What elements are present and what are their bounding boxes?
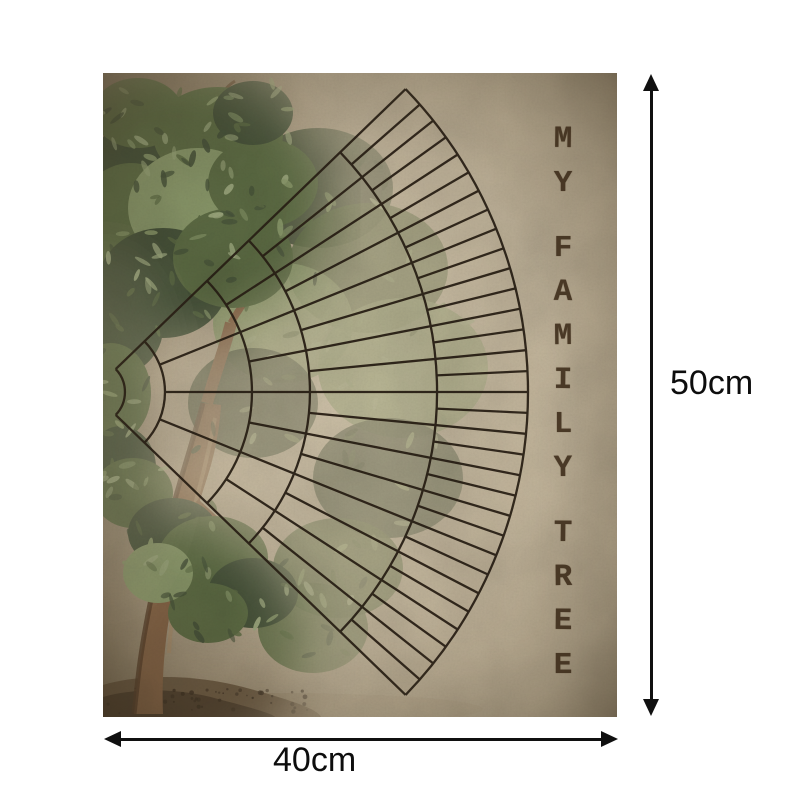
title-letter: Y: [533, 162, 593, 206]
title-letter: A: [533, 271, 594, 316]
height-label: 50cm: [670, 366, 753, 400]
title-letter: M: [533, 315, 593, 360]
width-arrow-line: [119, 738, 605, 741]
poster-title-vertical: MYFAMILYTREE: [533, 118, 593, 688]
arrow-up-icon: [643, 74, 659, 91]
poster: MYFAMILYTREE: [103, 73, 617, 717]
width-label: 40cm: [273, 743, 356, 777]
arrow-right-icon: [601, 731, 618, 747]
title-letter: L: [533, 403, 593, 447]
title-letter: R: [533, 556, 593, 601]
title-letter: E: [533, 600, 594, 645]
arrow-down-icon: [643, 699, 659, 716]
title-letter: T: [533, 512, 594, 557]
title-letter: E: [533, 644, 593, 688]
title-letter: I: [533, 359, 594, 404]
title-letter: M: [533, 118, 594, 163]
arrow-left-icon: [104, 731, 121, 747]
page-root: { "page": { "background": "#ffffff", "de…: [0, 0, 800, 800]
height-arrow-line: [650, 89, 653, 700]
title-letter: Y: [533, 447, 593, 492]
title-letter: F: [533, 227, 593, 271]
